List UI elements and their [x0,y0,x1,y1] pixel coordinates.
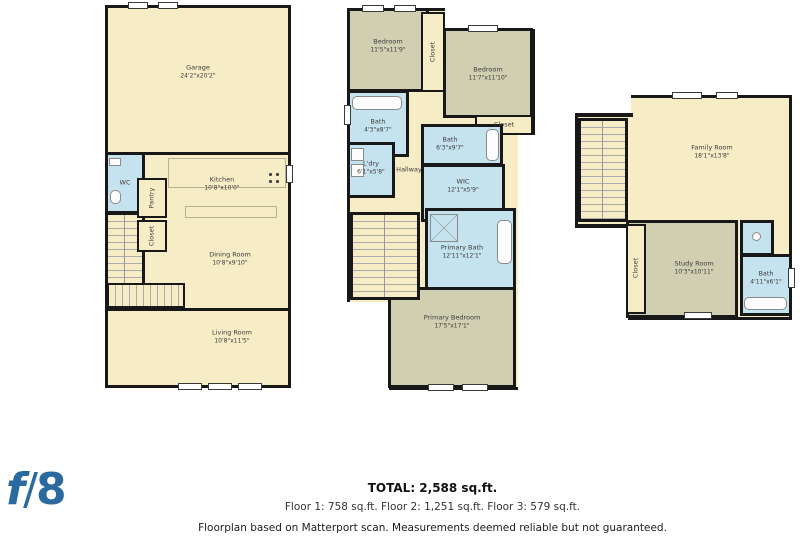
study-room-label: Study Room10'3"x10'11" [674,260,713,277]
floor3-wall [575,224,631,228]
primary-bedroom-room [388,287,516,388]
primary-bedroom-window [462,384,488,391]
wc-toilet-icon [110,190,121,204]
floor3-closet-label: Closet [632,258,641,278]
living-room-label: Living Room10'8"x11'5" [212,329,252,346]
family-room-window [672,92,702,99]
total-sqft-text: TOTAL: 2,588 sq.ft. [180,481,685,495]
floor2-stairs [350,212,420,300]
pantry-label: Pantry [148,188,157,209]
floor1-closet-label: Closet [148,226,157,246]
f8-logo-slash: / [23,464,36,515]
floor3-notch [573,228,628,322]
living-window [238,383,262,390]
stove-icon [266,170,281,185]
floor2-bath1-label: Bath4'3"x8'7" [364,118,392,135]
floorplan-page: Garage24'2"x20'2" WC Kitchen10'8"x10'0" … [0,0,800,537]
primary-bath-label: Primary Bath12'11"x12'1" [441,244,483,261]
bedroom1-window [362,5,384,12]
floor3-wall [575,113,633,117]
wic-label: WIC12'1"x5'9" [447,178,478,195]
study-window [684,312,712,319]
kitchen-window [286,165,293,183]
bath-window [344,105,351,125]
bathtub-icon [744,297,787,310]
floor3-stairs [578,118,628,222]
hallway-label: Hallway [396,166,422,175]
bedroom2-label: Bedroom11'7"x11'10" [468,66,507,83]
family-room-window [716,92,738,99]
floor2-bath2-label: Bath6'3"x9'7" [436,136,464,153]
bedroom1-label: Bedroom11'5"x11'9" [370,38,405,55]
bathtub-icon [352,96,402,110]
bathtub-icon [486,129,499,161]
primary-bedroom-window [428,384,454,391]
floor2-notch [345,302,389,392]
floor3-bath-label: Bath4'11"x6'1" [750,270,781,287]
f8-logo-eight: 8 [36,464,65,515]
f8-logo: f/8 [6,464,65,515]
garage-window [158,2,178,9]
bedroom2-window [468,25,498,32]
wc-sink-icon [109,158,121,166]
living-room [105,308,291,388]
primary-bedroom-label: Primary Bedroom17'5"x17'1" [424,314,481,331]
garage-window [128,2,148,9]
shower-icon [430,214,458,242]
bath-window [788,268,795,288]
f8-logo-f: f [6,464,23,515]
floor2-notch [518,135,537,392]
floor2-closet2-label: Closet [494,121,514,130]
bedroom1-window [394,5,416,12]
floor1-stairs-lower [107,283,185,308]
floor2-closet1-label: Closet [429,42,438,62]
bathtub-icon [497,220,512,264]
kitchen-island [185,206,277,218]
laundry-label: L'dry6'1"x5'8" [357,160,385,177]
living-window [178,383,202,390]
disclaimer-text: Floorplan based on Matterport scan. Meas… [180,522,685,534]
garage-label: Garage24'2"x20'2" [180,64,215,81]
wc-label: WC [120,179,131,188]
living-window [208,383,232,390]
kitchen-label: Kitchen10'8"x10'0" [204,176,239,193]
family-room-label: Family Room18'1"x13'8" [691,144,733,161]
floor-sqft-text: Floor 1: 758 sq.ft. Floor 2: 1,251 sq.ft… [180,501,685,513]
footer: TOTAL: 2,588 sq.ft. Floor 1: 758 sq.ft. … [180,481,685,534]
dining-room-label: Dining Room10'8"x9'10" [209,251,251,268]
shower-drain-icon [752,232,761,241]
